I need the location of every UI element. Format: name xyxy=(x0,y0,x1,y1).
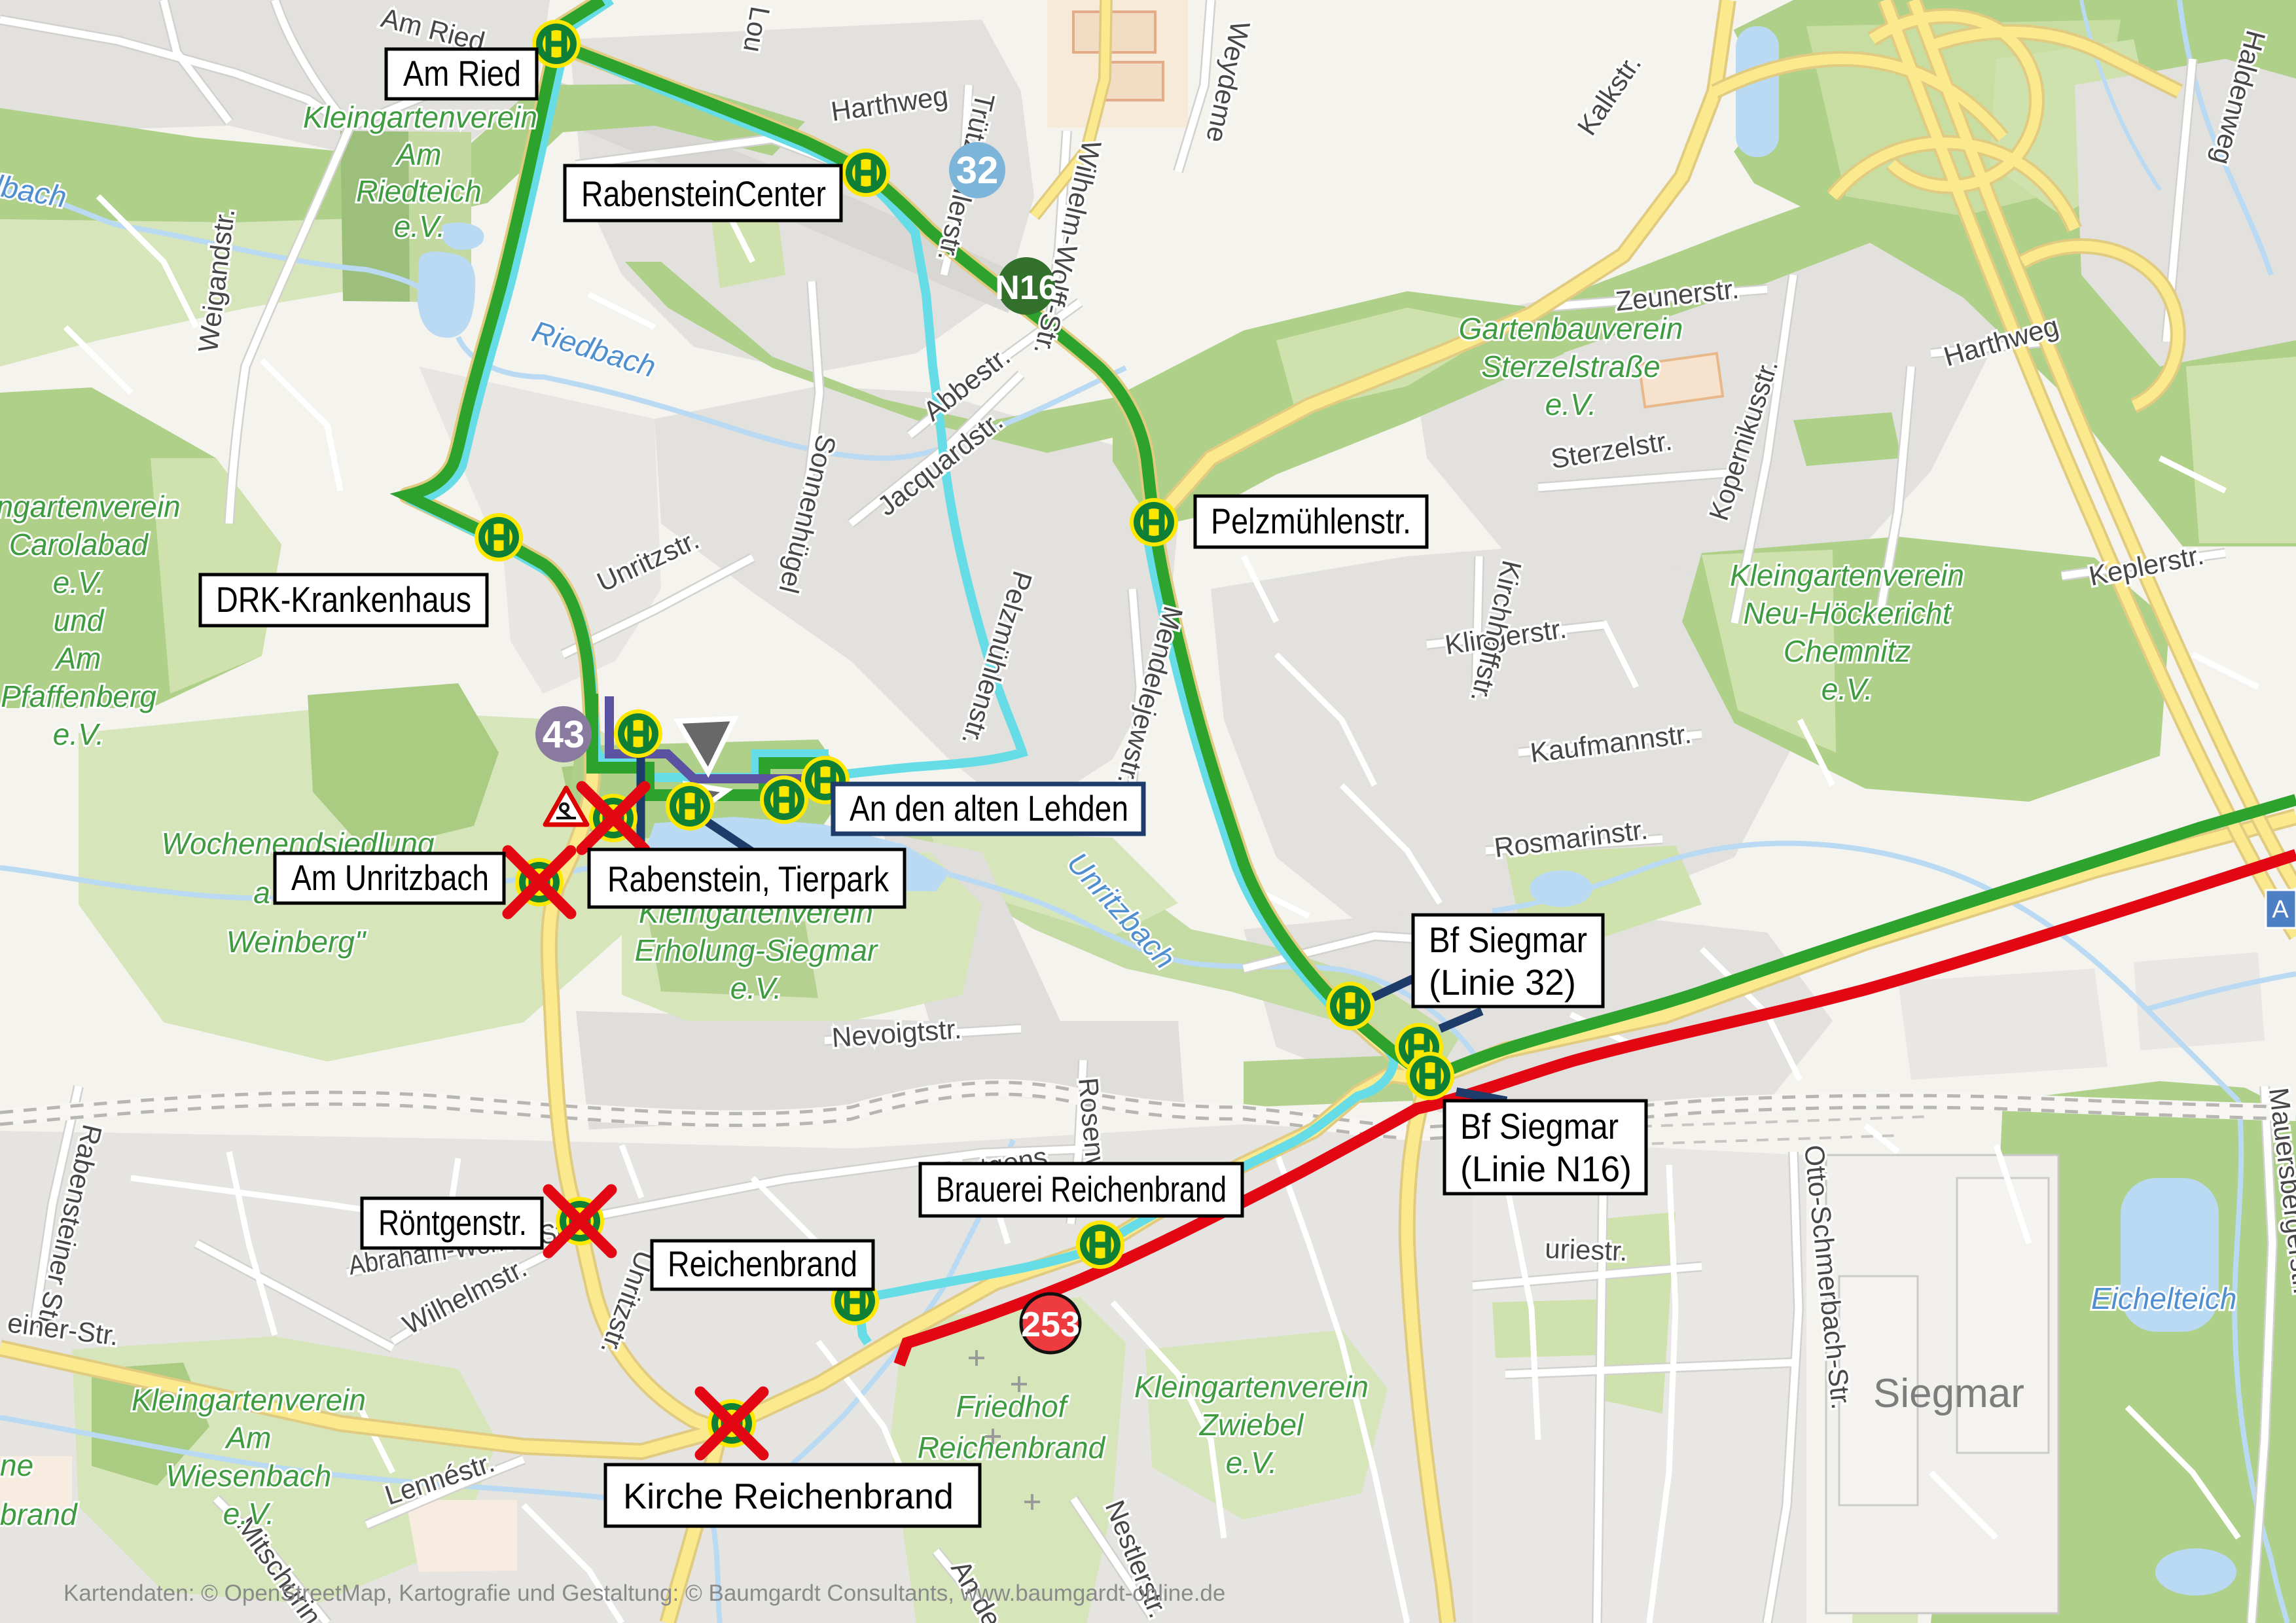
svg-text:e.V.: e.V. xyxy=(53,717,104,751)
svg-text:An den alten Lehden: An den alten Lehden xyxy=(850,788,1128,829)
svg-text:e.V.: e.V. xyxy=(1226,1446,1277,1480)
svg-text:DRK-Krankenhaus: DRK-Krankenhaus xyxy=(216,579,471,620)
svg-text:43: 43 xyxy=(543,713,585,756)
svg-text:Brauerei Reichenbrand: Brauerei Reichenbrand xyxy=(936,1169,1227,1209)
svg-text:brand: brand xyxy=(0,1497,78,1531)
svg-text:Am: Am xyxy=(395,137,442,171)
svg-text:Gartenbauverein: Gartenbauverein xyxy=(1459,312,1683,346)
svg-text:e.V.: e.V. xyxy=(1545,387,1596,421)
svg-text:Riedteich: Riedteich xyxy=(356,174,482,208)
svg-text:uriestr.: uriestr. xyxy=(1545,1233,1628,1266)
svg-text:RabensteinCenter: RabensteinCenter xyxy=(581,173,826,214)
svg-text:ingartenverein: ingartenverein xyxy=(0,490,181,524)
svg-text:Siegmar: Siegmar xyxy=(1873,1371,2024,1416)
svg-text:e.V.: e.V. xyxy=(730,971,781,1005)
svg-text:Carolabad: Carolabad xyxy=(9,527,149,562)
svg-text:ne: ne xyxy=(0,1448,33,1482)
svg-text:Wiesenbach: Wiesenbach xyxy=(166,1459,332,1493)
svg-text:Weinberg": Weinberg" xyxy=(226,925,367,959)
svg-text:Rabenstein, Tierpark: Rabenstein, Tierpark xyxy=(607,859,889,899)
svg-text:A: A xyxy=(2272,896,2289,923)
svg-text:Kirche Reichenbrand: Kirche Reichenbrand xyxy=(623,1476,954,1516)
svg-text:e.V.: e.V. xyxy=(1821,672,1873,706)
svg-text:Zwiebel: Zwiebel xyxy=(1199,1408,1304,1442)
svg-text:a: a xyxy=(253,876,270,910)
svg-text:Kleingartenverein: Kleingartenverein xyxy=(132,1383,366,1417)
svg-text:Pelzmühlenstr.: Pelzmühlenstr. xyxy=(1211,501,1411,541)
svg-text:253: 253 xyxy=(1021,1305,1080,1344)
svg-text:Röntgenstr.: Röntgenstr. xyxy=(378,1202,527,1243)
svg-text:Am: Am xyxy=(54,641,101,675)
svg-text:e.V.: e.V. xyxy=(394,209,445,243)
svg-text:Am Ried: Am Ried xyxy=(403,53,521,94)
svg-text:Kleingartenverein: Kleingartenverein xyxy=(1134,1370,1369,1404)
svg-text:Erholung-Siegmar: Erholung-Siegmar xyxy=(635,933,878,967)
svg-text:Friedhof: Friedhof xyxy=(956,1389,1069,1423)
svg-text:und: und xyxy=(54,603,105,637)
svg-text:Am: Am xyxy=(224,1421,272,1455)
svg-text:Bf Siegmar: Bf Siegmar xyxy=(1429,919,1587,960)
svg-text:Kleingartenverein: Kleingartenverein xyxy=(303,100,537,134)
svg-text:Kartendaten: © OpenStreetMap,: Kartendaten: © OpenStreetMap, Kartografi… xyxy=(63,1580,1225,1606)
svg-text:Am Unritzbach: Am Unritzbach xyxy=(291,857,489,898)
svg-text:Chemnitz: Chemnitz xyxy=(1784,634,1910,668)
svg-text:e.V.: e.V. xyxy=(53,565,104,599)
svg-text:Pfaffenberg: Pfaffenberg xyxy=(1,679,156,713)
svg-text:Neu-Höckericht: Neu-Höckericht xyxy=(1744,596,1952,630)
svg-text:N16: N16 xyxy=(995,269,1057,307)
svg-text:32: 32 xyxy=(956,149,999,192)
svg-text:e.V.: e.V. xyxy=(223,1497,274,1531)
svg-text:Bf Siegmar: Bf Siegmar xyxy=(1460,1106,1619,1147)
svg-text:Sterzelstraße: Sterzelstraße xyxy=(1481,349,1660,383)
svg-text:Kleingartenverein: Kleingartenverein xyxy=(1730,558,1964,592)
svg-text:(Linie 32): (Linie 32) xyxy=(1429,962,1576,1003)
svg-text:(Linie N16): (Linie N16) xyxy=(1460,1149,1632,1189)
svg-text:Reichenbrand: Reichenbrand xyxy=(668,1243,857,1284)
svg-text:Eichelteich: Eichelteich xyxy=(2091,1281,2236,1315)
svg-text:Reichenbrand: Reichenbrand xyxy=(918,1431,1106,1465)
